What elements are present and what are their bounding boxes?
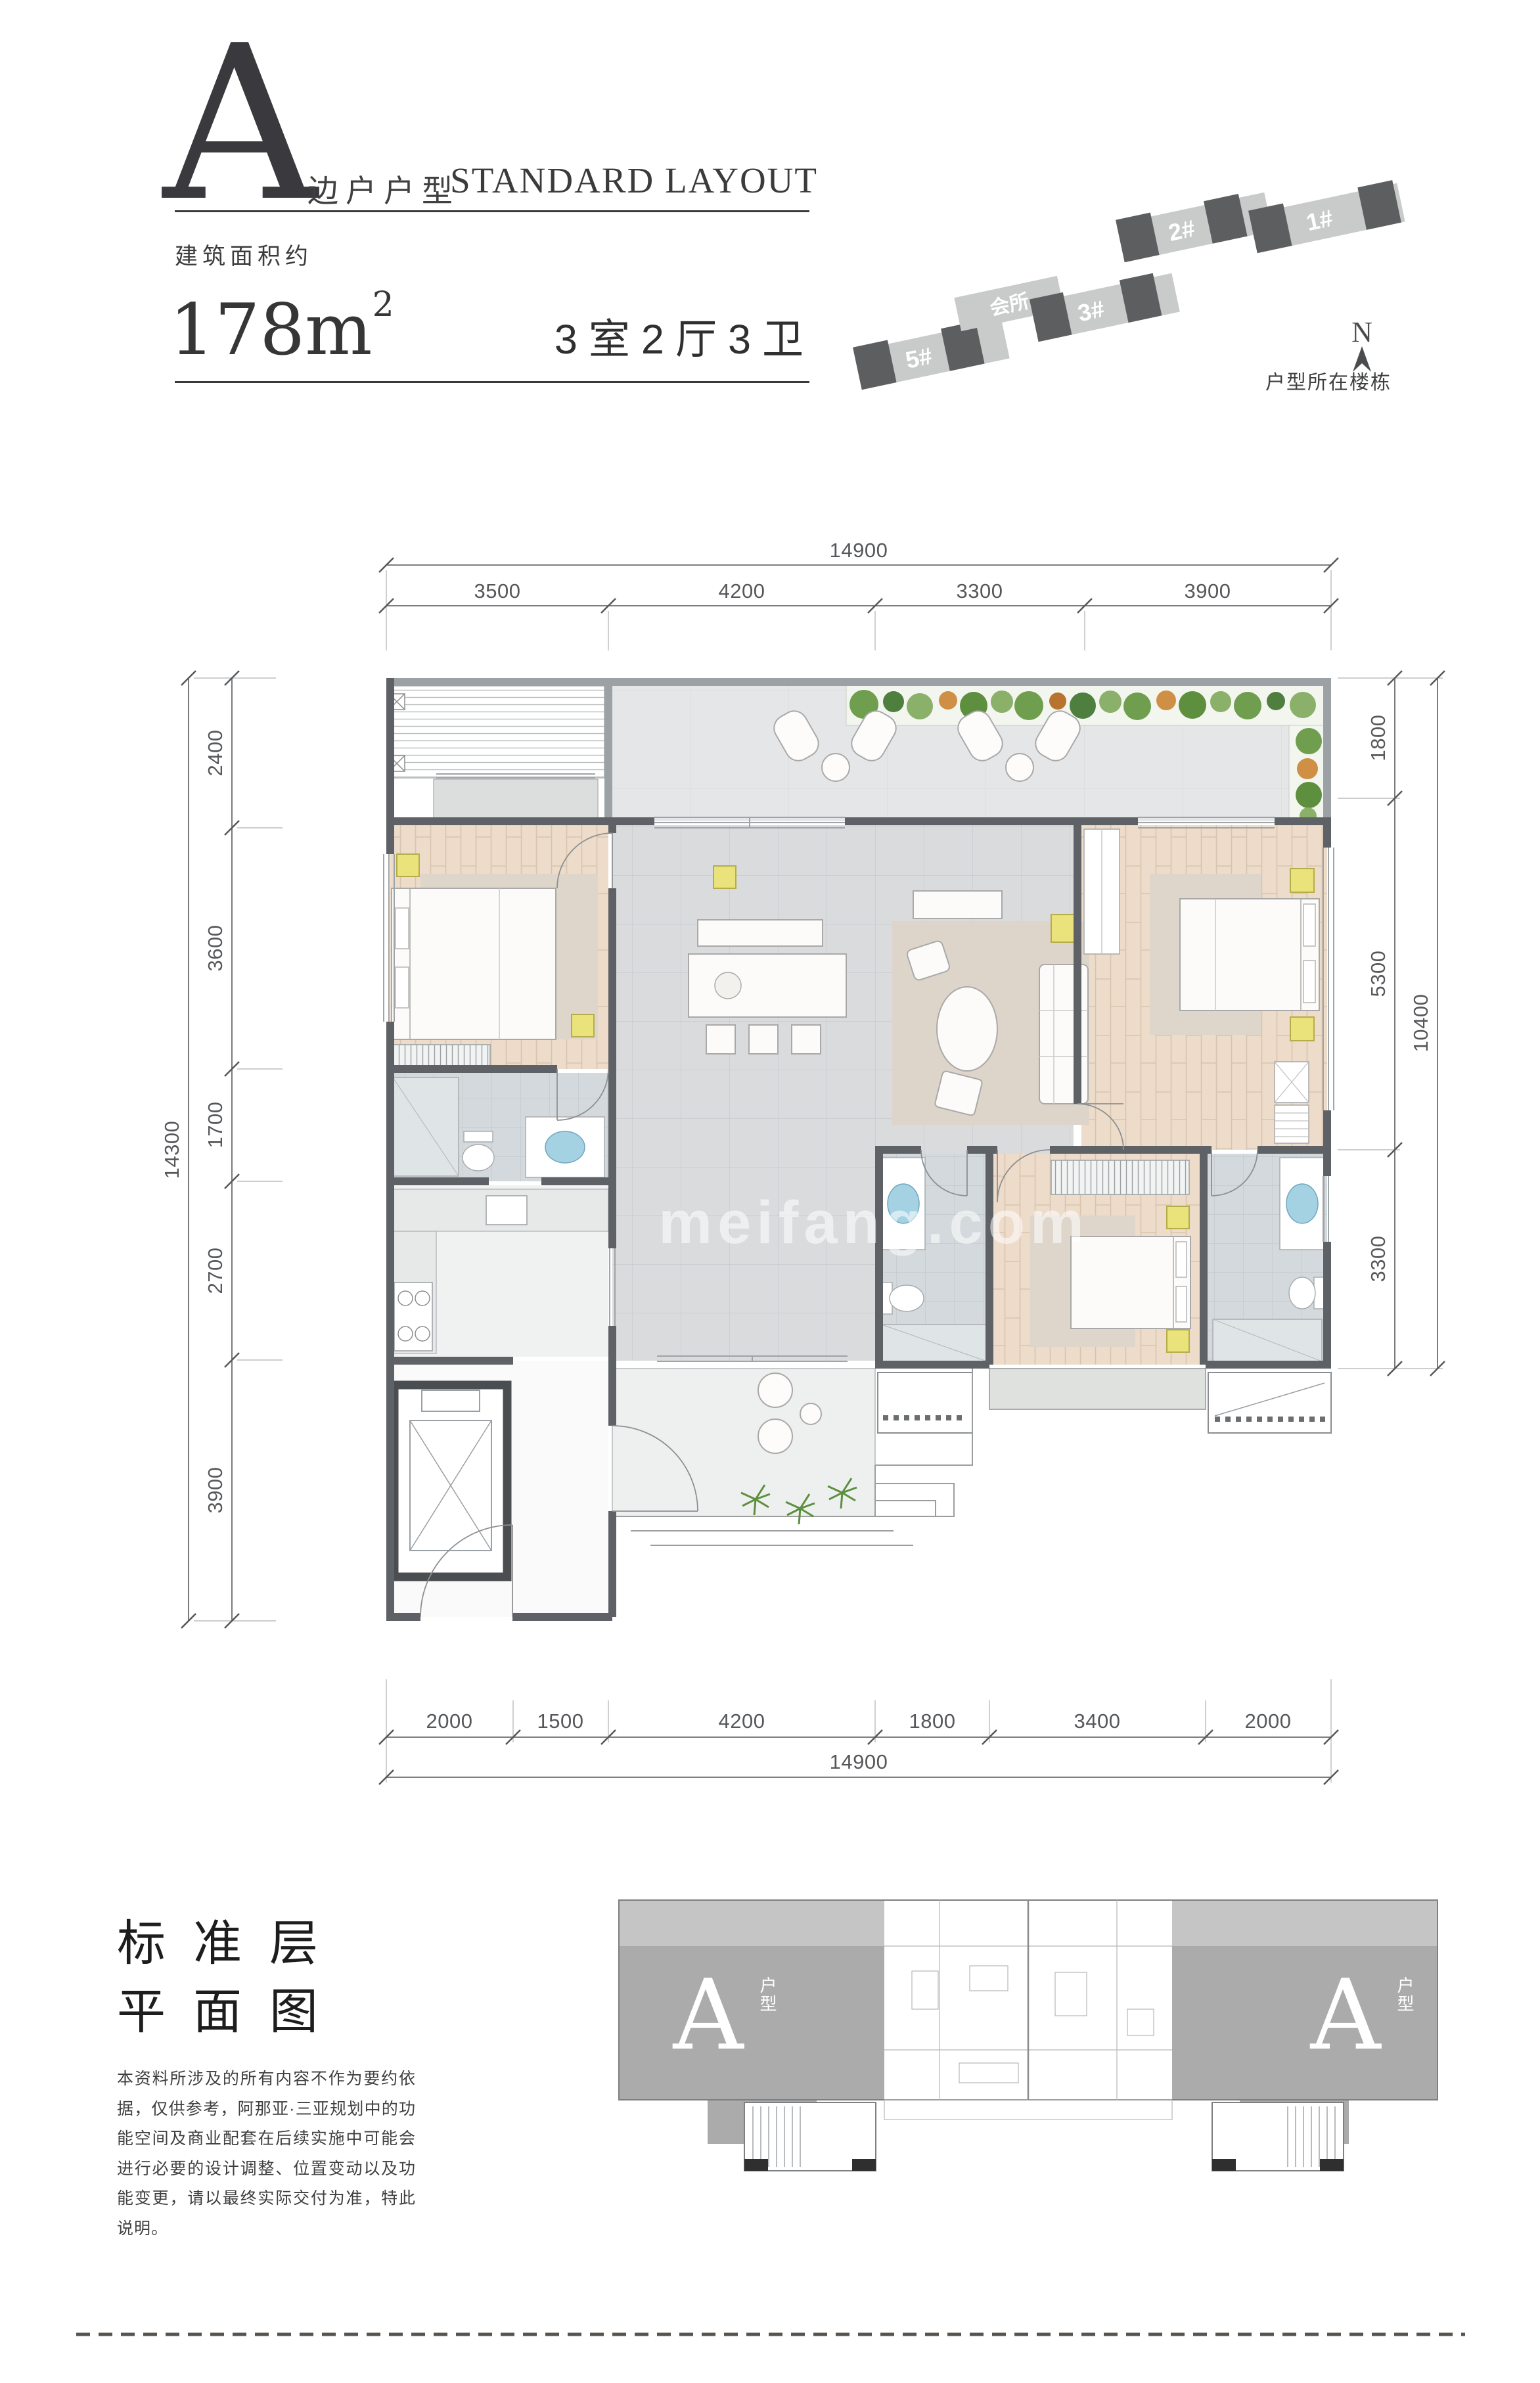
svg-text:3500: 3500	[474, 579, 521, 602]
ac-platform-right	[1208, 1373, 1331, 1433]
key-plan: A 户型 A 户型	[619, 1900, 1438, 2171]
north-arrow-icon: N	[1351, 316, 1372, 372]
svg-text:N: N	[1351, 316, 1372, 348]
svg-text:2400: 2400	[204, 730, 227, 777]
svg-text:1500: 1500	[537, 1710, 584, 1733]
site-building-1: 1#	[1248, 179, 1405, 253]
svg-text:3900: 3900	[204, 1467, 227, 1514]
svg-text:14300: 14300	[160, 1121, 183, 1179]
ac-louver-area	[390, 686, 604, 778]
window-bay-sill	[434, 779, 598, 821]
key-plan-stair-tower-right	[1212, 2102, 1344, 2171]
svg-text:4200: 4200	[719, 579, 765, 602]
svg-text:3600: 3600	[204, 925, 227, 972]
page-graphics: 5# 会所 3# 2# 1# N 户型所在楼栋	[0, 0, 1540, 2383]
key-plan-label-a-left: A	[673, 1959, 745, 2072]
svg-text:3400: 3400	[1074, 1710, 1121, 1733]
svg-text:14900: 14900	[830, 1750, 888, 1773]
site-location-map: 5# 会所 3# 2# 1# N 户型所在楼栋	[853, 179, 1405, 394]
svg-text:14900: 14900	[830, 539, 888, 562]
svg-text:1#: 1#	[1304, 204, 1336, 236]
svg-text:2700: 2700	[204, 1248, 227, 1294]
site-map-caption: 户型所在楼栋	[1265, 372, 1392, 394]
key-plan-stair-tower-left	[744, 2102, 876, 2171]
svg-text:3300: 3300	[957, 579, 1003, 602]
svg-text:1800: 1800	[1367, 715, 1390, 761]
watermark: meifang.com	[658, 1189, 1089, 1256]
key-plan-sublabel-left: 户型	[758, 1976, 777, 2013]
svg-text:10400: 10400	[1409, 994, 1432, 1053]
svg-text:5#: 5#	[903, 342, 935, 373]
svg-text:4200: 4200	[719, 1710, 765, 1733]
key-plan-label-a-right: A	[1310, 1959, 1382, 2072]
svg-text:5300: 5300	[1367, 951, 1390, 997]
bay-window-bedroom3	[989, 1369, 1206, 1409]
bedroom2-furniture	[392, 854, 598, 1067]
site-building-5: 5#	[853, 316, 1010, 390]
svg-text:1700: 1700	[204, 1102, 227, 1148]
svg-text:3300: 3300	[1367, 1236, 1390, 1282]
svg-text:2000: 2000	[426, 1710, 473, 1733]
key-plan-sublabel-right: 户型	[1395, 1976, 1415, 2013]
site-building-2: 2#	[1116, 189, 1273, 262]
svg-text:2000: 2000	[1245, 1710, 1292, 1733]
svg-text:1800: 1800	[909, 1710, 956, 1733]
svg-text:2#: 2#	[1166, 214, 1198, 246]
floor-plan: meifang.com 14900 3500 4200	[160, 539, 1445, 1784]
ac-platform-left	[878, 1373, 972, 1433]
svg-text:3900: 3900	[1185, 579, 1231, 602]
svg-text:3#: 3#	[1076, 295, 1107, 327]
